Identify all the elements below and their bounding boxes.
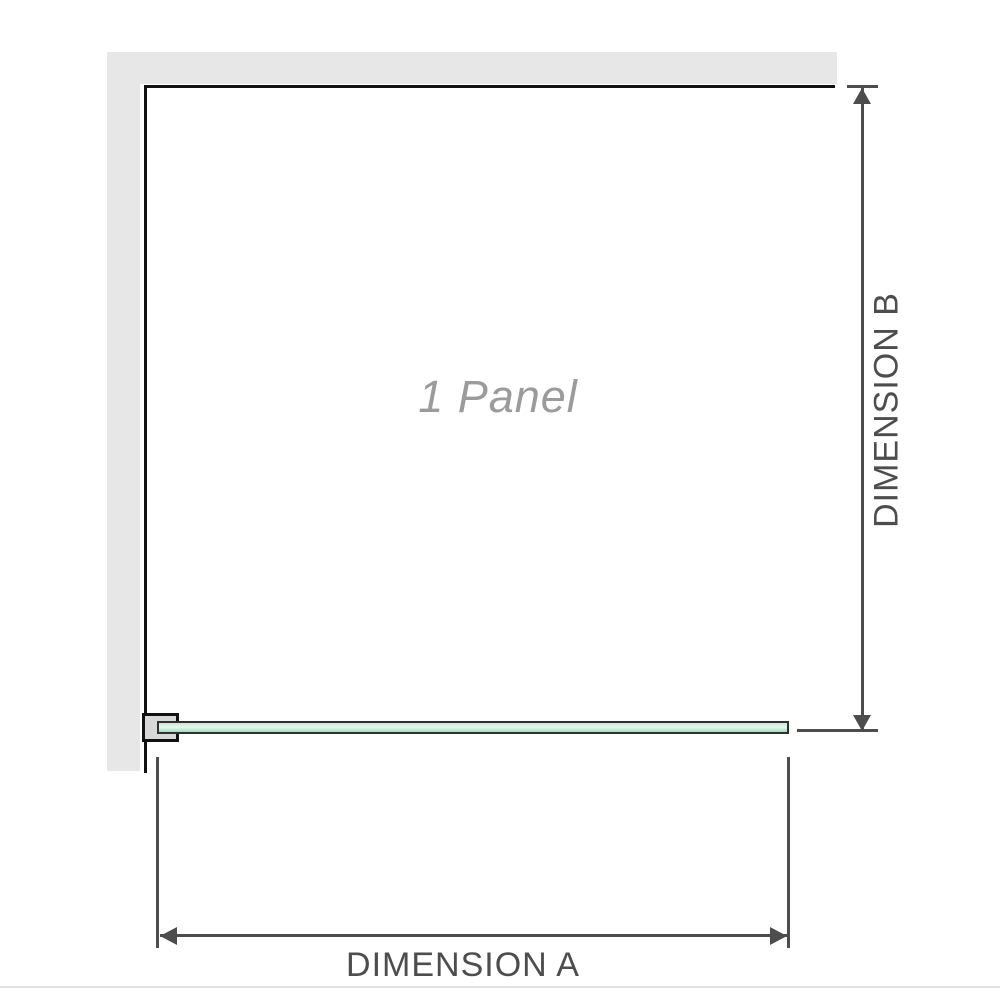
dimension-b-arrow-down-icon bbox=[853, 715, 871, 731]
dimension-a-arrow-left-icon bbox=[160, 927, 177, 945]
dimension-b-arrow-up-icon bbox=[853, 88, 871, 104]
dimension-b-line bbox=[861, 88, 864, 731]
image-bottom-rule bbox=[0, 986, 1000, 988]
shower-panel-diagram: 1 Panel DIMENSION B DIMENSION A bbox=[0, 0, 1000, 1000]
wall-top bbox=[107, 52, 837, 84]
panel-count-label: 1 Panel bbox=[418, 371, 578, 423]
wall-inner-edge-left bbox=[144, 85, 147, 773]
dimension-a-line bbox=[160, 934, 787, 937]
dimension-a-extension-right bbox=[787, 757, 790, 948]
wall-left bbox=[107, 52, 140, 771]
dimension-a-label: DIMENSION A bbox=[346, 946, 580, 985]
dimension-a-arrow-right-icon bbox=[770, 927, 787, 945]
wall-inner-edge-top bbox=[144, 85, 835, 88]
dimension-b-label: DIMENSION B bbox=[868, 292, 907, 528]
glass-panel bbox=[157, 721, 789, 734]
dimension-a-extension-left bbox=[156, 757, 159, 948]
